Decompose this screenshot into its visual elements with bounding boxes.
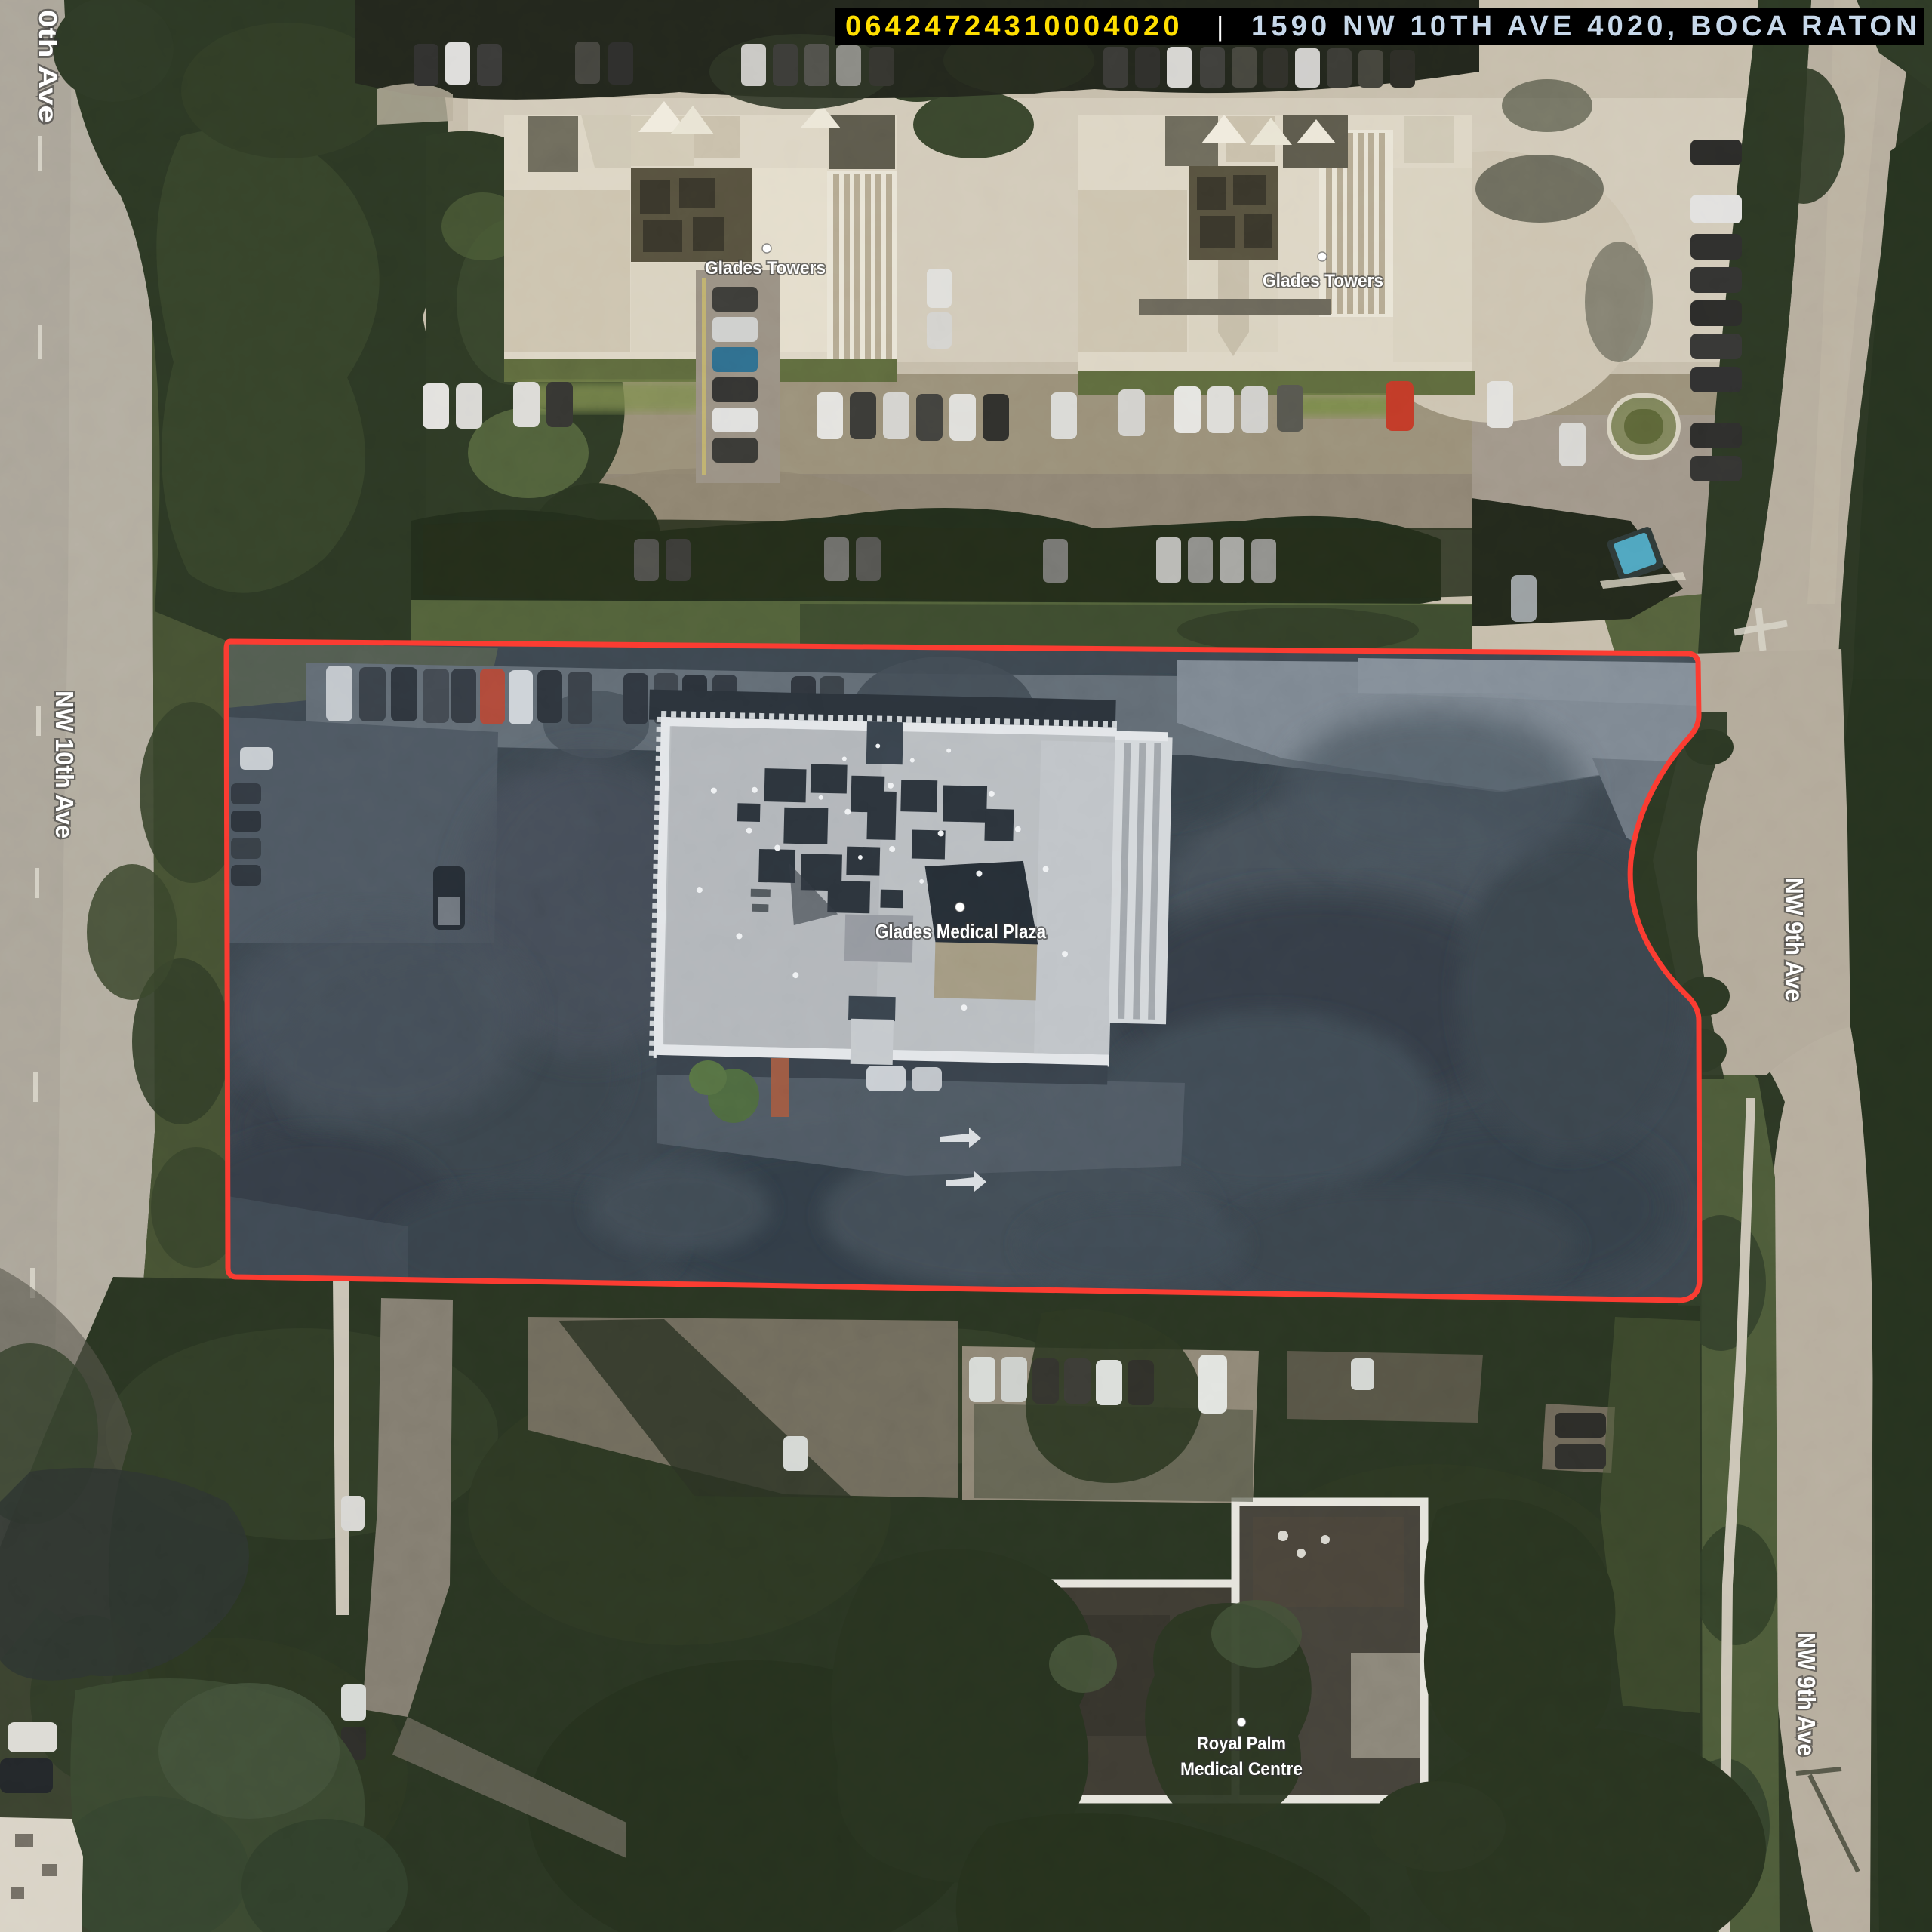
svg-text:Medical Centre: Medical Centre <box>1180 1759 1303 1780</box>
svg-text:|: | <box>1217 11 1223 42</box>
svg-text:NW 9th Ave: NW 9th Ave <box>1792 1632 1820 1756</box>
svg-text:1590 NW 10TH AVE 4020, BOCA RA: 1590 NW 10TH AVE 4020, BOCA RATON <box>1251 11 1921 42</box>
svg-text:NW 10th Ave: NW 10th Ave <box>51 691 78 838</box>
svg-text:Glades Towers: Glades Towers <box>705 258 826 278</box>
svg-text:0th Ave: 0th Ave <box>34 10 62 123</box>
svg-text:NW 9th Ave: NW 9th Ave <box>1780 878 1808 1001</box>
svg-text:Glades Towers: Glades Towers <box>1263 271 1383 291</box>
svg-text:06424724310004020: 06424724310004020 <box>845 11 1183 42</box>
svg-text:Glades Medical Plaza: Glades Medical Plaza <box>875 920 1046 943</box>
svg-text:Royal Palm: Royal Palm <box>1197 1734 1286 1754</box>
